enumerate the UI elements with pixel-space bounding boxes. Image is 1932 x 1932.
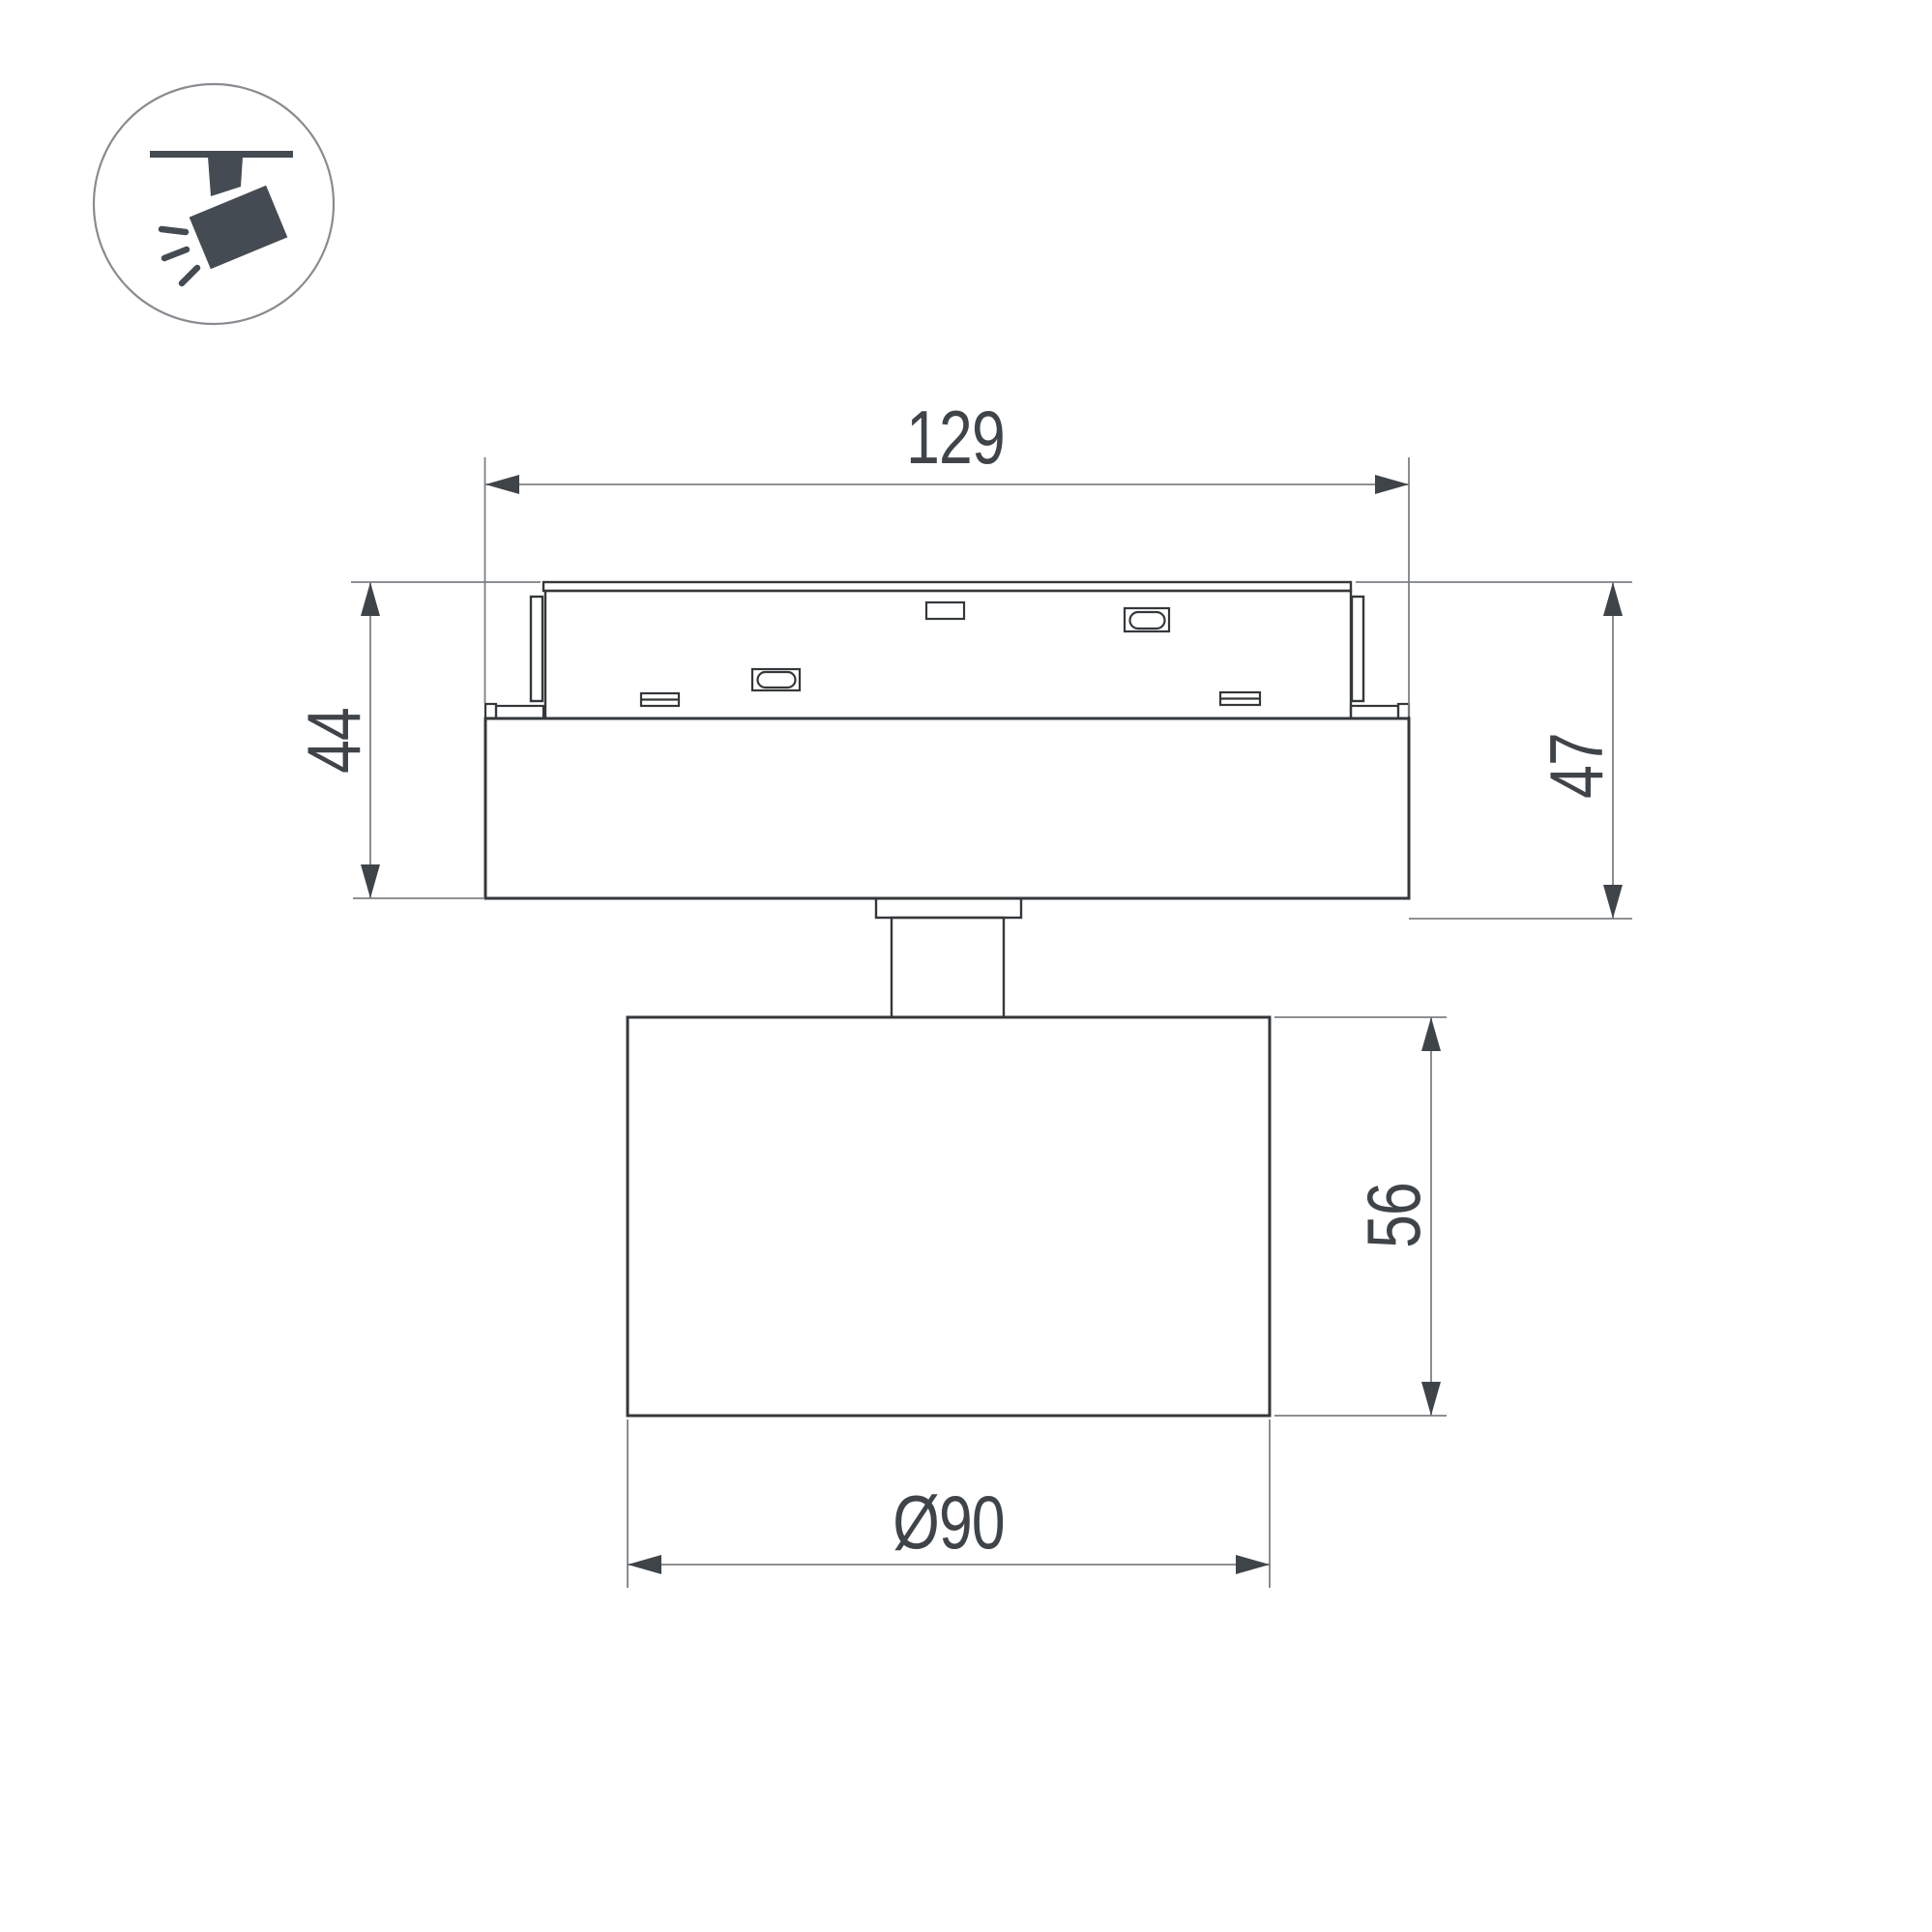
dim-label-47: 47 <box>1534 733 1618 799</box>
adapter-right-button <box>1130 612 1165 629</box>
dim-label-56: 56 <box>1351 1183 1435 1248</box>
icon-ceiling-track-bar <box>150 151 293 158</box>
track-adapter <box>485 582 1409 718</box>
icon-light-ray-1 <box>161 229 186 232</box>
adapter-dip-window <box>926 602 964 619</box>
base-housing <box>485 718 1409 898</box>
arrowhead-right <box>1375 475 1409 494</box>
swivel-stem <box>892 918 1004 1017</box>
mount-base <box>485 718 1409 1017</box>
adapter-left-tab <box>531 597 542 701</box>
arrowhead-up <box>1421 1017 1441 1051</box>
arrowhead-left <box>628 1555 661 1574</box>
dim-label-44: 44 <box>291 708 375 774</box>
dimension-head-height: 56 <box>1274 1017 1447 1416</box>
adapter-right-tab <box>1352 597 1363 701</box>
adapter-right-step-end <box>1398 704 1409 718</box>
adapter-left-step-strip <box>496 706 543 718</box>
adapter-rail-strip <box>543 582 1351 591</box>
arrowhead-down <box>361 864 380 898</box>
lamp-head <box>628 1017 1270 1416</box>
dimension-overall-height: 47 <box>1356 582 1632 919</box>
lamp-head-body <box>628 1017 1270 1416</box>
dim-label-d90: Ø90 <box>893 1479 1005 1564</box>
swivel-flange <box>876 898 1021 918</box>
track-light-icon <box>94 84 334 324</box>
icon-ring-circle <box>94 84 334 324</box>
arrowhead-left <box>485 475 519 494</box>
adapter-right-step-strip <box>1351 706 1398 718</box>
dimension-head-diameter: Ø90 <box>628 1420 1270 1588</box>
arrowhead-down <box>1421 1382 1441 1416</box>
dimension-adapter-height: 44 <box>291 582 541 898</box>
arrowhead-up <box>361 582 380 616</box>
fixture-dimension-drawing: 129 44 47 56 <box>0 0 1932 1932</box>
arrowhead-up <box>1603 582 1623 616</box>
dimension-adapter-width: 129 <box>485 395 1410 717</box>
arrowhead-down <box>1603 885 1623 919</box>
adapter-left-step-end <box>485 704 496 718</box>
adapter-left-button <box>758 672 796 688</box>
arrowhead-right <box>1236 1555 1270 1574</box>
dim-label-129: 129 <box>906 395 1005 479</box>
drawing-canvas: 129 44 47 56 <box>0 0 1932 1932</box>
